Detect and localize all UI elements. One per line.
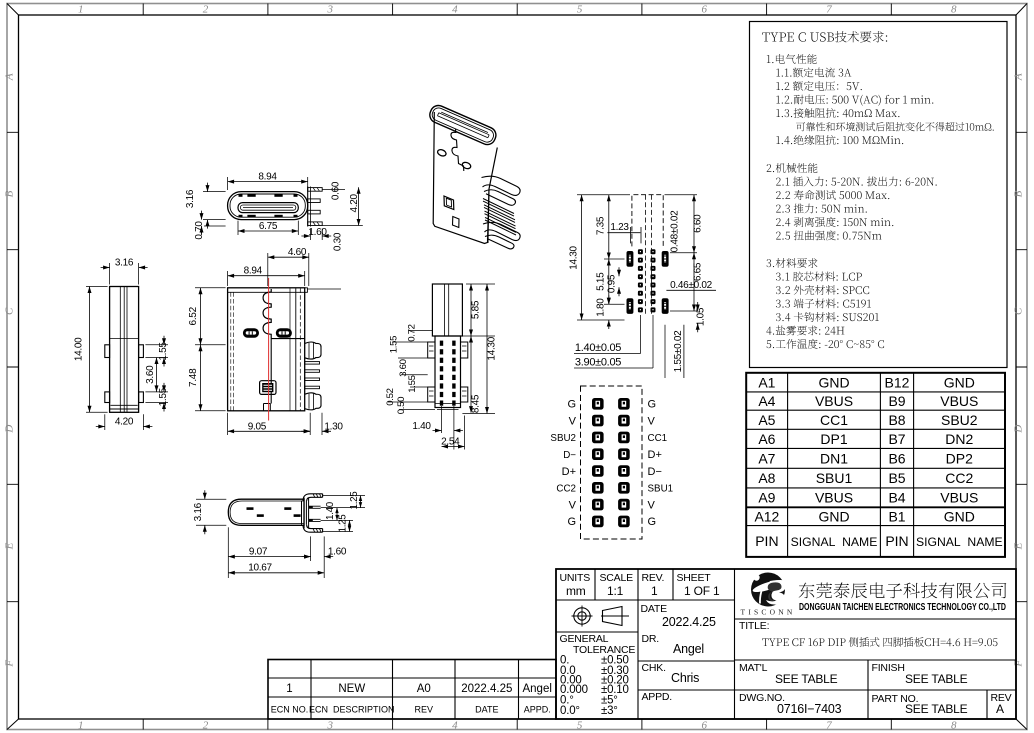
svg-text:4.20: 4.20 xyxy=(115,417,134,428)
svg-text:F: F xyxy=(1013,660,1025,668)
svg-text:A4: A4 xyxy=(758,393,775,409)
svg-text:CC1: CC1 xyxy=(648,433,668,444)
svg-text:0.46±0.02: 0.46±0.02 xyxy=(670,280,712,291)
svg-text:D−: D− xyxy=(563,450,576,461)
svg-text:8: 8 xyxy=(951,4,957,16)
svg-text:A7: A7 xyxy=(758,450,775,466)
svg-text:A: A xyxy=(996,702,1004,716)
svg-text:CC2: CC2 xyxy=(556,484,576,495)
svg-text:4: 4 xyxy=(452,4,458,16)
svg-text:0.50: 0.50 xyxy=(396,397,407,414)
svg-text:0.60: 0.60 xyxy=(331,181,342,200)
svg-text:14.30: 14.30 xyxy=(568,246,579,270)
svg-text:1.25: 1.25 xyxy=(349,491,360,510)
svg-text:1.23: 1.23 xyxy=(610,222,629,233)
svg-text:8: 8 xyxy=(951,720,957,732)
svg-text:3: 3 xyxy=(326,720,333,732)
svg-text:MAT'L: MAT'L xyxy=(739,662,768,674)
svg-text:Angel: Angel xyxy=(522,683,551,695)
svg-text:A: A xyxy=(1013,73,1025,81)
svg-text:SBU2: SBU2 xyxy=(550,433,576,444)
svg-text:4: 4 xyxy=(452,720,458,732)
svg-text:APPD.: APPD. xyxy=(524,705,551,715)
svg-text:7: 7 xyxy=(826,4,832,16)
svg-text:DN1: DN1 xyxy=(820,450,848,466)
svg-text:A: A xyxy=(4,73,16,81)
svg-text:1: 1 xyxy=(78,720,84,732)
svg-text:B9: B9 xyxy=(888,393,905,409)
svg-text:APPD.: APPD. xyxy=(642,691,673,703)
svg-text:3.16: 3.16 xyxy=(185,189,196,208)
svg-text:NEW: NEW xyxy=(338,683,365,695)
svg-text:A1: A1 xyxy=(758,374,775,390)
svg-text:SEE TABLE: SEE TABLE xyxy=(905,672,968,686)
svg-text:3.90±0.05: 3.90±0.05 xyxy=(575,356,621,368)
svg-text:SHEET: SHEET xyxy=(677,572,712,584)
svg-text:ECN DESCRIPTION: ECN DESCRIPTION xyxy=(309,705,395,715)
svg-text:D+: D+ xyxy=(562,466,576,478)
svg-text:B6: B6 xyxy=(888,450,905,466)
svg-text:0.0°: 0.0° xyxy=(560,705,580,717)
svg-text:6: 6 xyxy=(702,4,708,16)
svg-text:REV: REV xyxy=(415,705,434,715)
svg-text:B1: B1 xyxy=(888,509,905,525)
svg-text:1.55: 1.55 xyxy=(158,387,169,406)
svg-text:A9: A9 xyxy=(758,490,775,506)
svg-text:PIN: PIN xyxy=(885,533,908,549)
svg-text:0.95: 0.95 xyxy=(607,274,618,293)
svg-text:7: 7 xyxy=(826,720,832,732)
svg-text:2022.4.25: 2022.4.25 xyxy=(461,683,512,695)
svg-text:B4: B4 xyxy=(888,490,905,506)
svg-text:6.60: 6.60 xyxy=(693,214,704,233)
svg-text:DATE: DATE xyxy=(475,705,498,715)
svg-text:7.35: 7.35 xyxy=(596,216,607,235)
svg-text:1.60: 1.60 xyxy=(308,227,327,238)
svg-text:D−: D− xyxy=(648,466,662,478)
svg-text:G: G xyxy=(567,516,576,528)
svg-text:CC1: CC1 xyxy=(820,412,848,428)
svg-text:9.05: 9.05 xyxy=(248,421,267,432)
svg-text:3.60: 3.60 xyxy=(145,365,156,384)
svg-text:2: 2 xyxy=(203,720,209,732)
svg-text:5: 5 xyxy=(577,720,583,732)
svg-text:SEE TABLE: SEE TABLE xyxy=(775,672,838,686)
svg-text:G: G xyxy=(567,399,576,411)
svg-text:D+: D+ xyxy=(648,449,662,461)
svg-text:A0: A0 xyxy=(417,683,431,695)
svg-text:1.55: 1.55 xyxy=(407,375,418,392)
svg-text:SBU1: SBU1 xyxy=(648,484,674,495)
svg-text:14.30: 14.30 xyxy=(487,336,498,360)
svg-text:0.70: 0.70 xyxy=(194,221,205,240)
svg-text:2: 2 xyxy=(203,4,209,16)
svg-text:3.16: 3.16 xyxy=(115,257,134,268)
svg-text:DN2: DN2 xyxy=(945,431,973,447)
svg-text:8.94: 8.94 xyxy=(258,172,277,183)
svg-text:2022.4.25: 2022.4.25 xyxy=(662,615,716,629)
svg-text:14.00: 14.00 xyxy=(74,337,85,361)
svg-text:1.30: 1.30 xyxy=(324,421,343,432)
svg-text:C: C xyxy=(1013,307,1025,315)
svg-text:GND: GND xyxy=(818,374,849,390)
svg-text:A6: A6 xyxy=(758,431,775,447)
svg-text:D: D xyxy=(1013,425,1025,434)
svg-text:G: G xyxy=(648,516,657,528)
svg-text:SIGNAL NAME: SIGNAL NAME xyxy=(791,535,878,549)
svg-text:8.94: 8.94 xyxy=(244,266,263,277)
svg-text:Chris: Chris xyxy=(671,671,699,685)
svg-text:2.54: 2.54 xyxy=(441,437,460,448)
svg-text:GND: GND xyxy=(944,374,975,390)
svg-text:Angel: Angel xyxy=(673,642,704,656)
svg-text:B5: B5 xyxy=(888,470,905,486)
svg-text:ECN NO.: ECN NO. xyxy=(271,705,309,715)
svg-text:B8: B8 xyxy=(888,412,905,428)
svg-text:V: V xyxy=(569,415,577,427)
svg-text:V: V xyxy=(569,499,577,511)
svg-text:C: C xyxy=(4,307,16,315)
svg-text:B7: B7 xyxy=(888,431,905,447)
svg-text:VBUS: VBUS xyxy=(940,393,978,409)
svg-text:1.60: 1.60 xyxy=(328,546,347,557)
svg-text:1.55±0.02: 1.55±0.02 xyxy=(673,330,684,372)
svg-text:SIGNAL NAME: SIGNAL NAME xyxy=(916,535,1003,549)
svg-text:1: 1 xyxy=(286,683,292,695)
svg-text:VBUS: VBUS xyxy=(940,490,978,506)
svg-text:SEE TABLE: SEE TABLE xyxy=(905,702,968,716)
svg-text:A8: A8 xyxy=(758,470,775,486)
svg-text:6.65: 6.65 xyxy=(693,262,704,281)
svg-text:B: B xyxy=(1013,190,1025,197)
svg-text:PIN: PIN xyxy=(755,533,778,549)
svg-text:1: 1 xyxy=(651,584,658,598)
svg-text:SBU2: SBU2 xyxy=(941,412,978,428)
svg-text:A12: A12 xyxy=(754,509,779,525)
svg-text:0716I−7403: 0716I−7403 xyxy=(777,702,842,716)
svg-text:FINISH: FINISH xyxy=(872,662,905,674)
svg-text:±3°: ±3° xyxy=(601,705,618,717)
svg-text:1.40: 1.40 xyxy=(412,421,431,432)
svg-text:3.60: 3.60 xyxy=(398,359,409,376)
svg-text:SBU1: SBU1 xyxy=(816,470,853,486)
svg-text:E: E xyxy=(1013,542,1025,550)
svg-text:REV.: REV. xyxy=(642,572,665,584)
svg-text:6.52: 6.52 xyxy=(188,306,199,325)
svg-text:CHK.: CHK. xyxy=(642,662,666,674)
svg-text:VBUS: VBUS xyxy=(815,490,853,506)
svg-text:GND: GND xyxy=(818,509,849,525)
svg-text:1.40: 1.40 xyxy=(325,501,336,520)
svg-text:5: 5 xyxy=(577,4,583,16)
svg-text:A5: A5 xyxy=(758,412,775,428)
svg-text:6.75: 6.75 xyxy=(259,221,278,232)
svg-text:1.05: 1.05 xyxy=(696,307,707,326)
svg-text:V: V xyxy=(648,499,656,511)
svg-text:DP1: DP1 xyxy=(820,431,847,447)
svg-text:TISCONN: TISCONN xyxy=(741,608,796,617)
svg-text:GND: GND xyxy=(944,509,975,525)
svg-text:0.52: 0.52 xyxy=(385,388,396,405)
svg-text:D: D xyxy=(4,425,16,434)
svg-text:1.55: 1.55 xyxy=(389,336,400,353)
svg-text:6: 6 xyxy=(702,720,708,732)
svg-text:3: 3 xyxy=(326,4,333,16)
svg-text:1.55: 1.55 xyxy=(158,342,169,361)
svg-text:CC2: CC2 xyxy=(945,470,973,486)
svg-text:9.07: 9.07 xyxy=(249,546,268,557)
svg-text:SCALE: SCALE xyxy=(600,572,634,584)
svg-text:DONGGUAN TAICHEN ELECTRONICS T: DONGGUAN TAICHEN ELECTRONICS TECHNOLOGY … xyxy=(799,602,1006,613)
svg-text:1.40±0.05: 1.40±0.05 xyxy=(575,342,621,354)
svg-text:UNITS: UNITS xyxy=(560,572,591,584)
svg-text:4.20: 4.20 xyxy=(349,194,360,213)
svg-text:DATE: DATE xyxy=(641,603,668,615)
svg-text:TITLE:: TITLE: xyxy=(739,620,769,632)
svg-text:mm: mm xyxy=(566,584,586,598)
svg-text:5.85: 5.85 xyxy=(471,300,482,319)
svg-text:VBUS: VBUS xyxy=(815,393,853,409)
svg-text:1.25: 1.25 xyxy=(338,514,349,533)
svg-text:10.67: 10.67 xyxy=(248,563,272,574)
svg-text:1: 1 xyxy=(78,4,84,16)
svg-text:B: B xyxy=(4,190,16,197)
svg-text:F: F xyxy=(4,660,16,668)
svg-text:DR.: DR. xyxy=(642,633,659,645)
svg-text:V: V xyxy=(648,415,656,427)
svg-text:DP2: DP2 xyxy=(946,450,973,466)
svg-text:5.15: 5.15 xyxy=(596,272,607,291)
svg-text:0.72: 0.72 xyxy=(407,324,418,341)
svg-text:G: G xyxy=(648,399,657,411)
svg-text:3.16: 3.16 xyxy=(193,502,204,521)
svg-text:4.60: 4.60 xyxy=(288,247,307,258)
svg-text:0.48±0.02: 0.48±0.02 xyxy=(670,210,681,252)
svg-text:B12: B12 xyxy=(885,374,910,390)
svg-text:1 OF 1: 1 OF 1 xyxy=(684,584,720,598)
svg-text:1.80: 1.80 xyxy=(596,298,607,317)
svg-text:7.48: 7.48 xyxy=(188,368,199,387)
svg-text:E: E xyxy=(4,542,16,550)
svg-text:8.45: 8.45 xyxy=(471,394,482,413)
svg-text:1:1: 1:1 xyxy=(607,584,624,598)
svg-text:0.30: 0.30 xyxy=(333,232,344,251)
